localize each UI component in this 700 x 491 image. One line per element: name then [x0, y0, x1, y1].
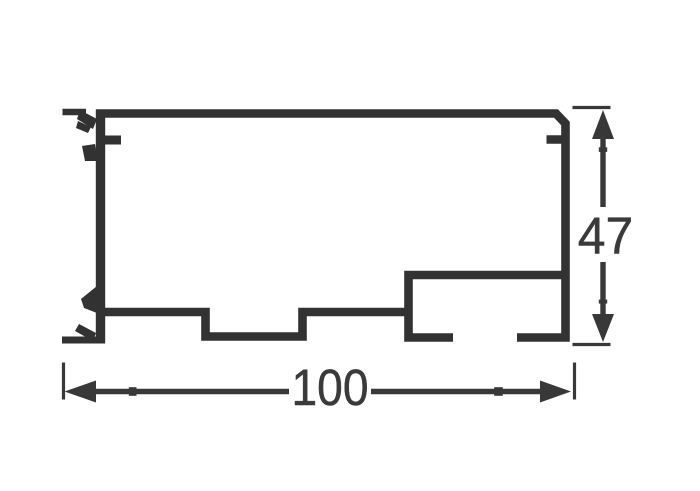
svg-text:47: 47: [578, 207, 634, 265]
svg-text:100: 100: [292, 359, 369, 416]
